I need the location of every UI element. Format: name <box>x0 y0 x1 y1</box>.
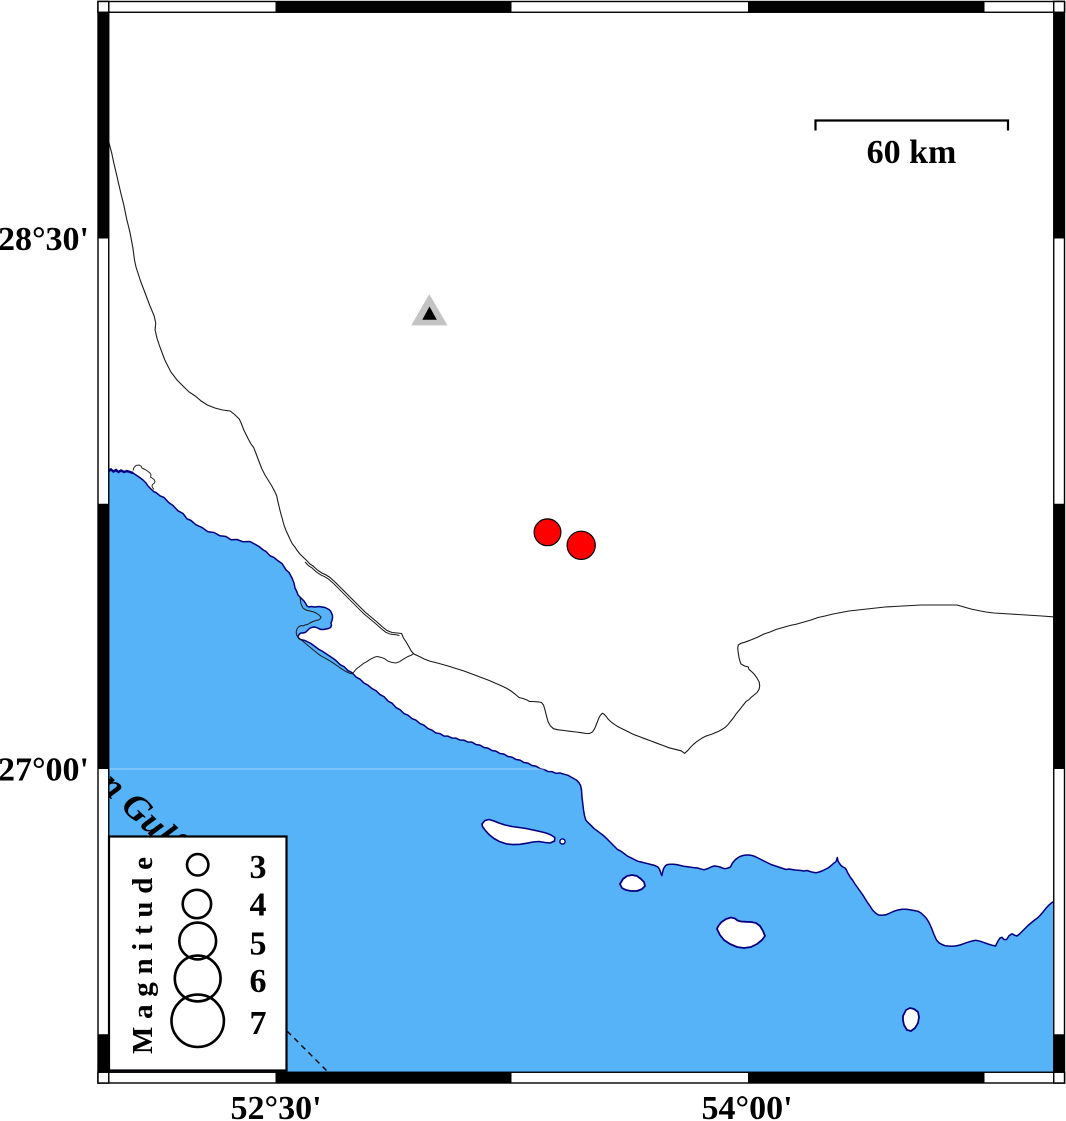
svg-text:52°30': 52°30' <box>230 1090 321 1121</box>
svg-text:28°30': 28°30' <box>0 221 89 258</box>
svg-text:7: 7 <box>250 1005 267 1042</box>
svg-text:6: 6 <box>250 963 267 1000</box>
svg-text:54°00': 54°00' <box>701 1090 792 1121</box>
svg-text:3: 3 <box>250 849 267 886</box>
svg-text:27°00': 27°00' <box>0 752 89 789</box>
svg-text:60 km: 60 km <box>867 134 957 171</box>
svg-text:Magnitude: Magnitude <box>127 849 159 1054</box>
svg-text:5: 5 <box>250 926 267 963</box>
svg-text:4: 4 <box>250 887 267 924</box>
